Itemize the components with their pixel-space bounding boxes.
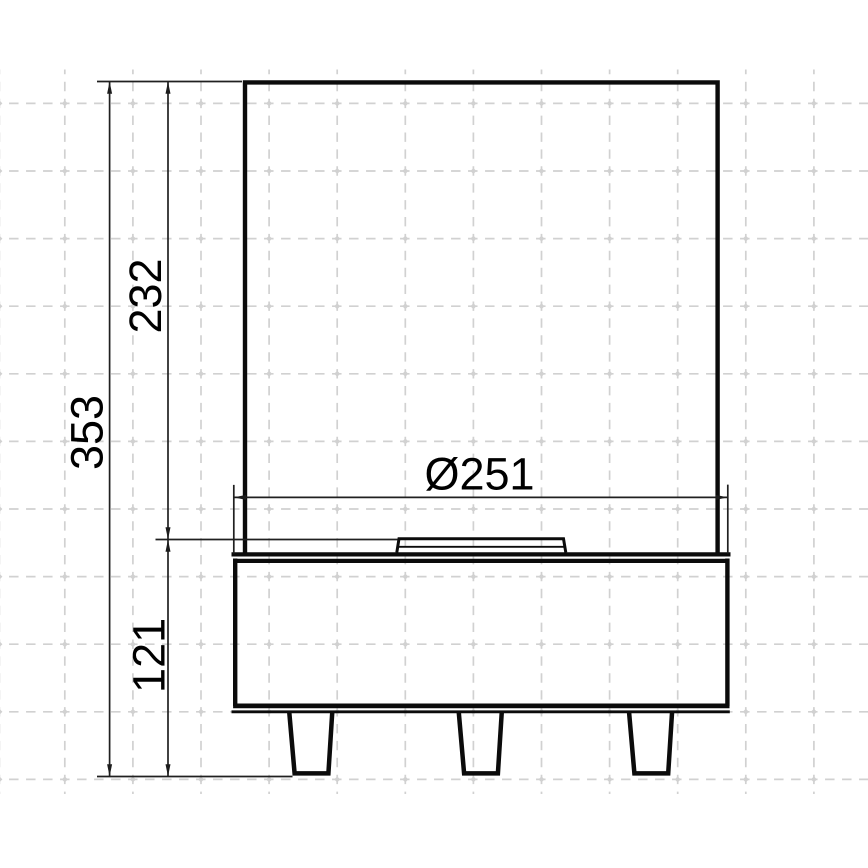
svg-text:121: 121 bbox=[124, 618, 175, 693]
svg-text:232: 232 bbox=[120, 258, 171, 333]
svg-text:Ø251: Ø251 bbox=[424, 449, 534, 500]
svg-text:353: 353 bbox=[62, 395, 113, 470]
